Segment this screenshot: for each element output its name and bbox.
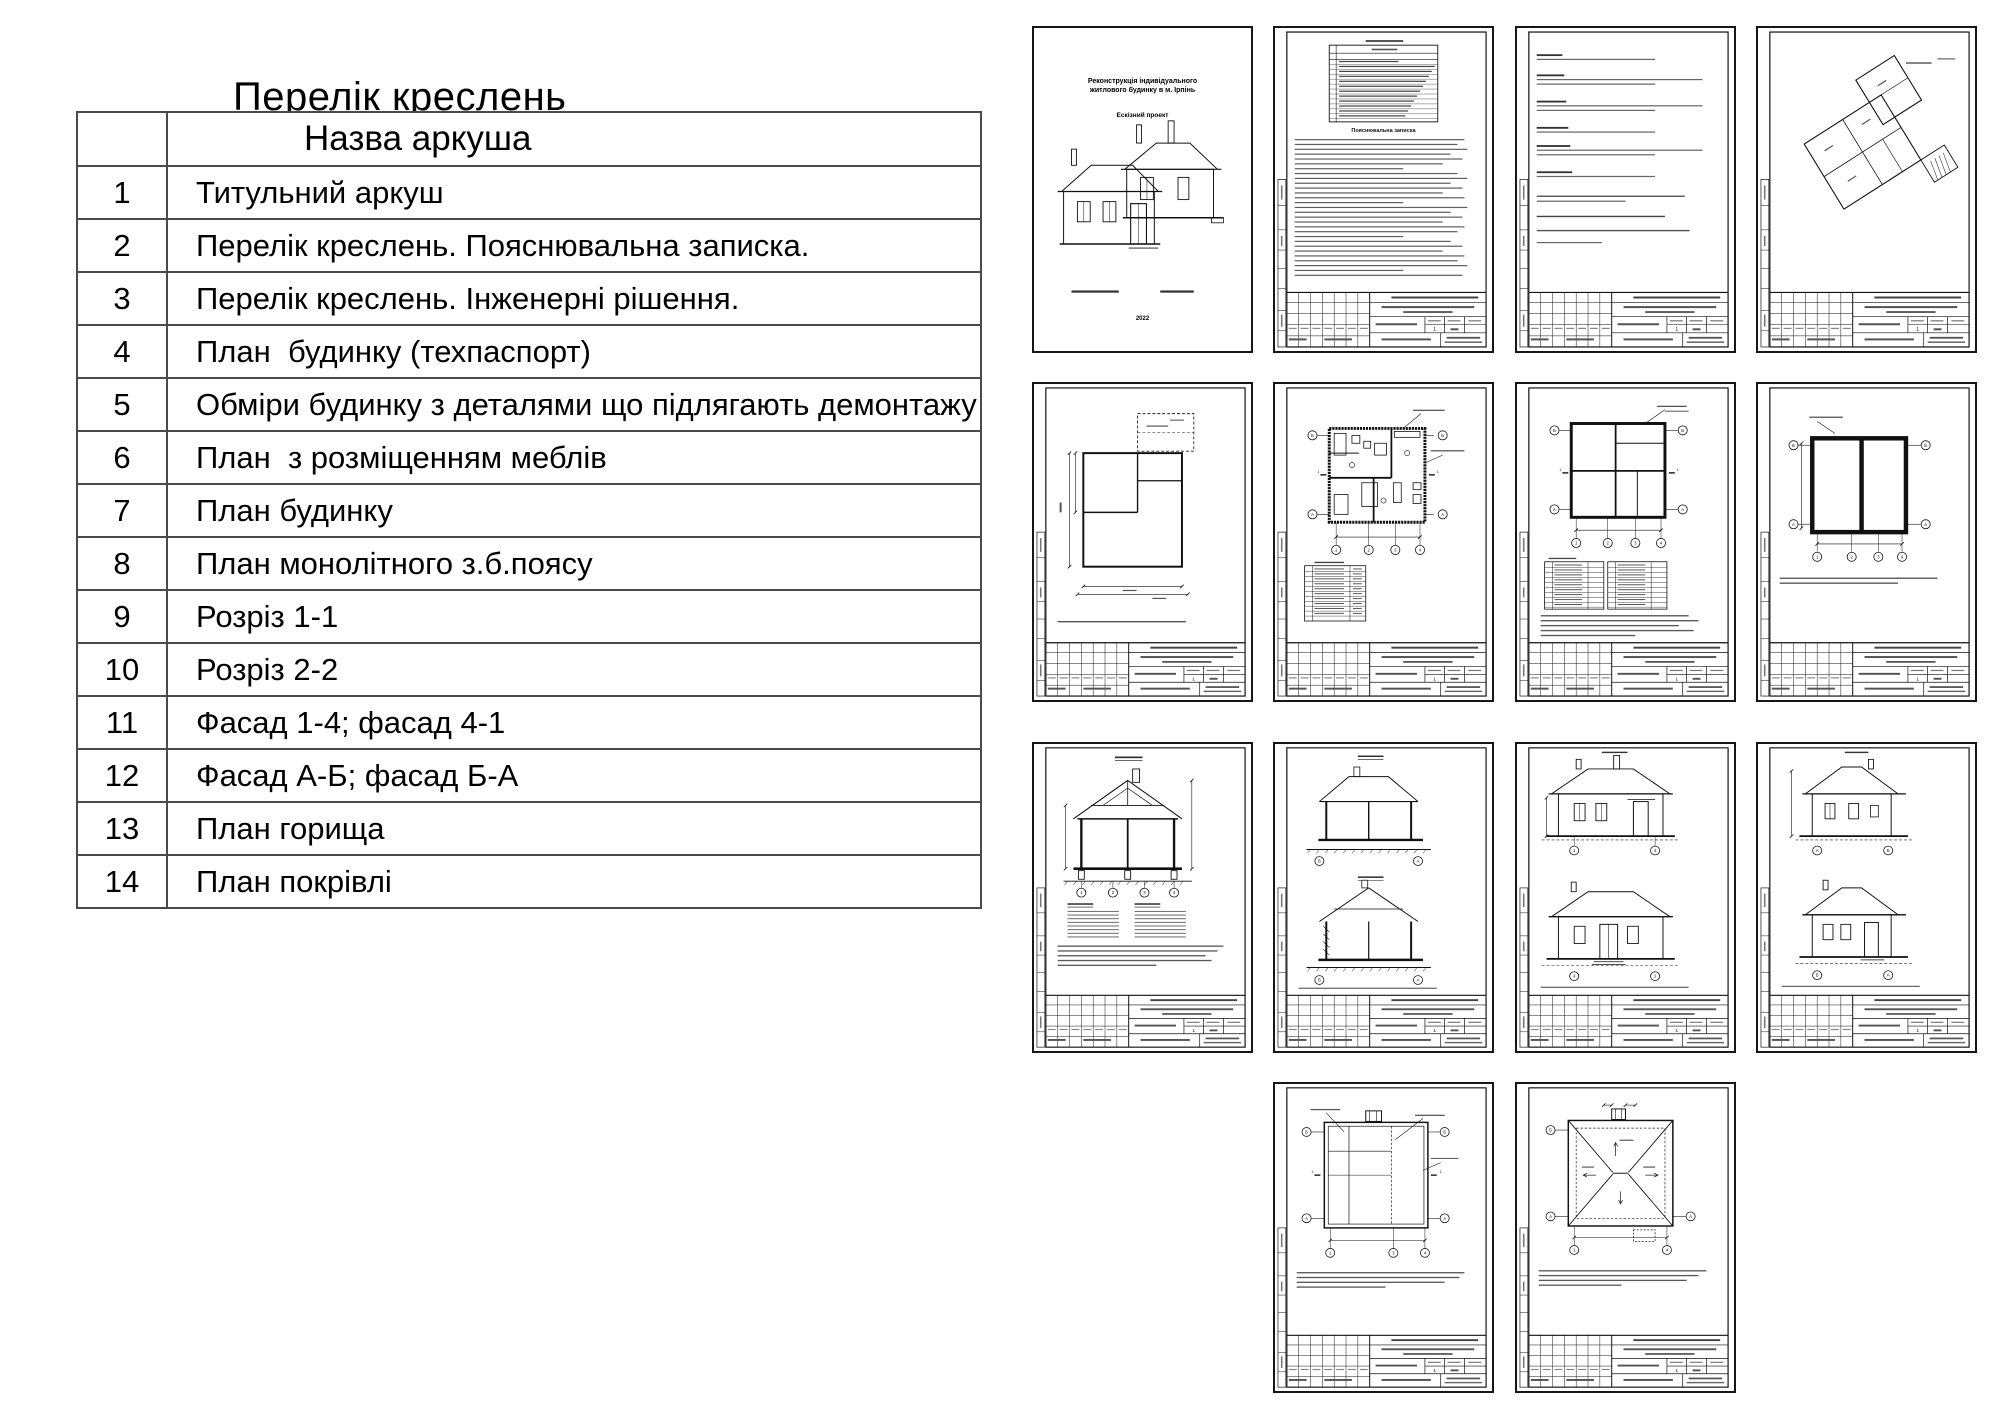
svg-text:1: 1 bbox=[1575, 541, 1578, 546]
rotated-floor-plan bbox=[1791, 56, 1962, 232]
svg-text:4: 4 bbox=[1419, 547, 1422, 552]
sheet-1-thumbnail: Реконструкція індивідуальногожитлового б… bbox=[1032, 26, 1253, 353]
sheet-drawing-text_page: 1 bbox=[1517, 28, 1734, 351]
svg-text:1: 1 bbox=[1433, 1368, 1436, 1374]
svg-text:Б: Б bbox=[1549, 1128, 1552, 1133]
svg-text:А: А bbox=[1887, 973, 1890, 978]
svg-text:Б: Б bbox=[1305, 1130, 1308, 1135]
sheet-drawing-list_note: 1Пояснювальна записка bbox=[1275, 28, 1492, 351]
sheet-name: Перелік креслень. Пояснювальна записка. bbox=[168, 229, 980, 263]
sheet-number: 3 bbox=[78, 273, 168, 324]
sheet-drawing-plan_roof: 1БАА14 bbox=[1517, 1084, 1734, 1391]
table-row: 9Розріз 1-1 bbox=[78, 589, 980, 642]
column-header: Назва аркуша bbox=[168, 122, 980, 156]
sheet-drawing-plan_attic: 1ББАА11134 bbox=[1275, 1084, 1492, 1391]
sheet-name: План будинку bbox=[168, 494, 980, 528]
sheet-number: 13 bbox=[78, 803, 168, 854]
sheet-number: 5 bbox=[78, 379, 168, 430]
sheet-number: 1 bbox=[78, 167, 168, 218]
sheet-name: План монолітного з.б.поясу bbox=[168, 547, 980, 581]
table-row: 14План покрівлі bbox=[78, 854, 980, 907]
sheet-5-thumbnail: 1 bbox=[1032, 382, 1253, 702]
svg-text:4: 4 bbox=[1666, 1248, 1669, 1253]
table-row: 1Титульний аркуш bbox=[78, 165, 980, 218]
svg-text:Б: Б bbox=[1681, 428, 1684, 433]
svg-text:1: 1 bbox=[1916, 327, 1919, 333]
project-subtitle: Ескізний проект bbox=[1034, 112, 1251, 119]
sheet-drawing-section_2: 1БАБА bbox=[1275, 744, 1492, 1051]
svg-text:1: 1 bbox=[1440, 1170, 1442, 1174]
table-row: 3Перелік креслень. Інженерні рішення. bbox=[78, 271, 980, 324]
table-row: 7План будинку bbox=[78, 483, 980, 536]
svg-text:4: 4 bbox=[1660, 541, 1663, 546]
sheet-name: План горища bbox=[168, 812, 980, 846]
svg-text:1: 1 bbox=[1675, 677, 1678, 683]
drawing-content bbox=[1537, 54, 1703, 243]
drawing-content: ББАА111234 bbox=[1305, 410, 1465, 621]
drawing-list-table: Назва аркуша 1Титульний аркуш2Перелік кр… bbox=[76, 111, 982, 909]
sheet-number: 12 bbox=[78, 750, 168, 801]
table-body: 1Титульний аркуш2Перелік креслень. Поясн… bbox=[78, 165, 980, 907]
sheet-14-thumbnail: 1БАА14 bbox=[1515, 1082, 1736, 1393]
sheet-drawing-facade_14: 11441 bbox=[1517, 744, 1734, 1051]
svg-text:Б: Б bbox=[1816, 973, 1819, 978]
svg-text:1: 1 bbox=[1317, 470, 1319, 474]
sheet-number: 14 bbox=[78, 856, 168, 907]
svg-text:А: А bbox=[1417, 859, 1420, 864]
sheet-number: 9 bbox=[78, 591, 168, 642]
svg-text:1: 1 bbox=[1675, 1028, 1678, 1034]
svg-text:1: 1 bbox=[1573, 1248, 1576, 1253]
svg-text:А: А bbox=[1689, 1214, 1692, 1219]
svg-text:Б: Б bbox=[1924, 443, 1927, 448]
svg-text:3: 3 bbox=[1394, 547, 1397, 552]
svg-text:1: 1 bbox=[1573, 848, 1576, 853]
svg-text:1: 1 bbox=[1192, 677, 1195, 683]
table-row: 10Розріз 2-2 bbox=[78, 642, 980, 695]
table-row: 4План будинку (техпаспорт) bbox=[78, 324, 980, 377]
svg-text:1: 1 bbox=[1080, 890, 1083, 895]
sheet-drawing-plan_furniture: 1ББАА111234 bbox=[1275, 384, 1492, 700]
drawing-content: БАБА bbox=[1299, 756, 1437, 989]
table-header-row: Назва аркуша bbox=[78, 113, 980, 165]
sheet-name: Титульний аркуш bbox=[168, 176, 980, 210]
sheet-drawing-plan_belt: 1ББАА1234 bbox=[1758, 384, 1975, 700]
drawing-content: ББАА111234 bbox=[1541, 406, 1699, 636]
svg-text:А: А bbox=[1816, 848, 1819, 853]
drawing-content: АББА bbox=[1782, 752, 1920, 987]
svg-text:1: 1 bbox=[1192, 1028, 1195, 1034]
table-row: 2Перелік креслень. Пояснювальна записка. bbox=[78, 218, 980, 271]
svg-text:А: А bbox=[1417, 978, 1420, 983]
sheet-number: 8 bbox=[78, 538, 168, 589]
sheet-name: Перелік креслень. Інженерні рішення. bbox=[168, 282, 980, 316]
svg-text:А: А bbox=[1549, 1214, 1552, 1219]
drawing-content: ББАА1234 bbox=[1780, 417, 1938, 584]
sheet-7-thumbnail: 1ББАА111234 bbox=[1515, 382, 1736, 702]
sheet-name: План з розміщенням меблів bbox=[168, 441, 980, 475]
project-title-line2: житлового будинку в м. Ірпінь bbox=[1034, 87, 1251, 96]
drawing-content bbox=[1058, 414, 1194, 623]
header-number-cell bbox=[78, 113, 168, 165]
svg-text:А: А bbox=[1305, 1216, 1308, 1221]
sheet-name: Розріз 1-1 bbox=[168, 600, 980, 634]
svg-text:1: 1 bbox=[1677, 468, 1679, 472]
sheet-2-thumbnail: 1Пояснювальна записка bbox=[1273, 26, 1494, 353]
svg-text:А: А bbox=[1443, 1216, 1446, 1221]
table-row: 11Фасад 1-4; фасад 4-1 bbox=[78, 695, 980, 748]
svg-text:2: 2 bbox=[1850, 554, 1853, 559]
svg-text:Б: Б bbox=[1318, 978, 1321, 983]
svg-text:3: 3 bbox=[1143, 890, 1146, 895]
sheet-11-thumbnail: 11441 bbox=[1515, 742, 1736, 1053]
scanned-document-page: Перелік креслень Назва аркуша 1Титульний… bbox=[0, 0, 2000, 1414]
svg-text:4: 4 bbox=[1654, 848, 1657, 853]
sheet-number: 7 bbox=[78, 485, 168, 536]
title-sheet-drawing bbox=[1034, 28, 1251, 351]
svg-text:А: А bbox=[1681, 507, 1684, 512]
svg-text:1: 1 bbox=[1433, 677, 1436, 683]
sheet-drawing-section_1: 11234 bbox=[1034, 744, 1251, 1051]
drawing-content: 1441 bbox=[1541, 752, 1689, 988]
svg-text:1: 1 bbox=[1916, 1028, 1919, 1034]
sheet-number: 6 bbox=[78, 432, 168, 483]
svg-text:3: 3 bbox=[1634, 541, 1637, 546]
sheet-3-thumbnail: 1 bbox=[1515, 26, 1736, 353]
svg-text:4: 4 bbox=[1901, 554, 1904, 559]
table-row: 6План з розміщенням меблів bbox=[78, 430, 980, 483]
table-row: 5Обміри будинку з деталями що підлягають… bbox=[78, 377, 980, 430]
svg-text:Б: Б bbox=[1553, 428, 1556, 433]
svg-text:1: 1 bbox=[1335, 547, 1338, 552]
sheet-name: Обміри будинку з деталями що підлягають … bbox=[168, 388, 980, 422]
sheet-8-thumbnail: 1ББАА1234 bbox=[1756, 382, 1977, 702]
sheet-drawing-plan_measure: 1 bbox=[1034, 384, 1251, 700]
drawing-content: Пояснювальна записка bbox=[1295, 40, 1468, 276]
drawing-content: БАА14 bbox=[1539, 1103, 1707, 1285]
svg-text:А: А bbox=[1792, 522, 1795, 527]
sheet-13-thumbnail: 1ББАА11134 bbox=[1273, 1082, 1494, 1393]
table-row: 13План горища bbox=[78, 801, 980, 854]
sheet-number: 4 bbox=[78, 326, 168, 377]
sheet-drawing-plan_tech: 1 bbox=[1758, 28, 1975, 351]
sheet-drawing-facade_ab: 1АББА bbox=[1758, 744, 1975, 1051]
sheet-number: 2 bbox=[78, 220, 168, 271]
sheet-name: План будинку (техпаспорт) bbox=[168, 335, 980, 369]
svg-text:1: 1 bbox=[1816, 554, 1819, 559]
svg-text:Б: Б bbox=[1887, 848, 1890, 853]
sheet-4-thumbnail: 1 bbox=[1756, 26, 1977, 353]
sheet-drawing-plan_main: 1ББАА111234 bbox=[1517, 384, 1734, 700]
svg-text:2: 2 bbox=[1112, 890, 1115, 895]
sheet-6-thumbnail: 1ББАА111234 bbox=[1273, 382, 1494, 702]
sheet-name: Фасад А-Б; фасад Б-А bbox=[168, 759, 980, 793]
svg-text:1: 1 bbox=[1311, 1170, 1313, 1174]
svg-text:3: 3 bbox=[1877, 554, 1880, 559]
svg-text:1: 1 bbox=[1433, 1028, 1436, 1034]
sheet-12-thumbnail: 1АББА bbox=[1756, 742, 1977, 1053]
drawing-content: ББАА11134 bbox=[1297, 1109, 1465, 1288]
svg-text:Б: Б bbox=[1311, 433, 1314, 438]
svg-text:1: 1 bbox=[1916, 677, 1919, 683]
svg-text:4: 4 bbox=[1173, 890, 1176, 895]
table-row: 8План монолітного з.б.поясу bbox=[78, 536, 980, 589]
svg-text:2: 2 bbox=[1367, 547, 1370, 552]
svg-text:1: 1 bbox=[1329, 1250, 1332, 1255]
sheet-10-thumbnail: 1БАБА bbox=[1273, 742, 1494, 1053]
svg-text:Б: Б bbox=[1441, 433, 1444, 438]
svg-text:А: А bbox=[1924, 522, 1927, 527]
svg-text:Пояснювальна записка: Пояснювальна записка bbox=[1351, 128, 1416, 134]
svg-text:4: 4 bbox=[1424, 1250, 1427, 1255]
svg-text:Б: Б bbox=[1318, 859, 1321, 864]
svg-text:1: 1 bbox=[1675, 1368, 1678, 1374]
svg-text:Б: Б bbox=[1443, 1130, 1446, 1135]
svg-text:1: 1 bbox=[1675, 327, 1678, 333]
project-title-line1: Реконструкція індивідуального bbox=[1034, 78, 1251, 87]
sheet-number: 11 bbox=[78, 697, 168, 748]
svg-text:1: 1 bbox=[1437, 470, 1439, 474]
svg-text:1: 1 bbox=[1559, 468, 1561, 472]
svg-text:2: 2 bbox=[1607, 541, 1610, 546]
svg-text:А: А bbox=[1311, 512, 1314, 517]
svg-text:4: 4 bbox=[1573, 974, 1576, 979]
svg-text:1: 1 bbox=[1654, 974, 1657, 979]
drawing-content bbox=[1791, 56, 1962, 232]
svg-text:А: А bbox=[1553, 507, 1556, 512]
sheet-number: 10 bbox=[78, 644, 168, 695]
sheet-9-thumbnail: 11234 bbox=[1032, 742, 1253, 1053]
title-sheet-year: 2022 bbox=[1034, 316, 1251, 322]
sheet-name: Розріз 2-2 bbox=[168, 653, 980, 687]
svg-text:А: А bbox=[1441, 512, 1444, 517]
sheet-name: Фасад 1-4; фасад 4-1 bbox=[168, 706, 980, 740]
table-row: 12Фасад А-Б; фасад Б-А bbox=[78, 748, 980, 801]
sheet-name: План покрівлі bbox=[168, 865, 980, 899]
svg-text:1: 1 bbox=[1433, 327, 1436, 333]
svg-text:3: 3 bbox=[1392, 1250, 1395, 1255]
drawing-content: 1234 bbox=[1058, 756, 1224, 966]
svg-text:Б: Б bbox=[1792, 443, 1795, 448]
